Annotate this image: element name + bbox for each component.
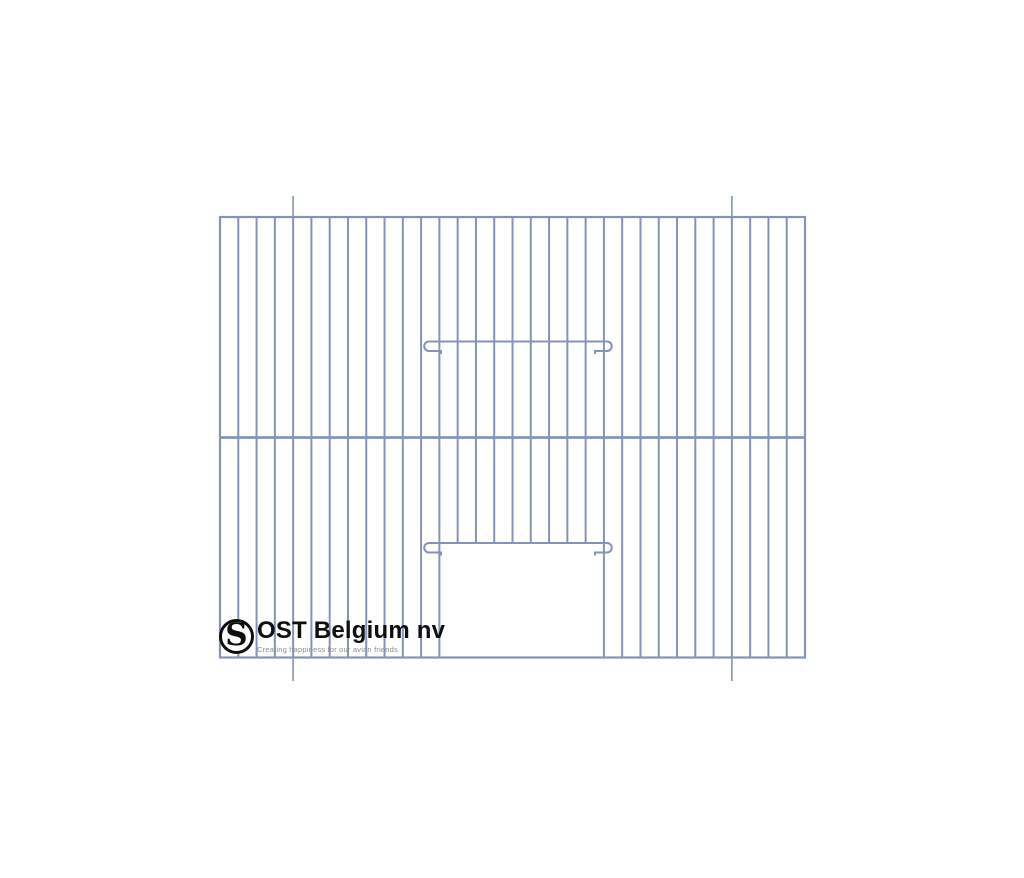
brand-name: OST Belgium nv: [257, 618, 445, 644]
cage-front-drawing: [0, 0, 1024, 878]
brand-tagline: Creating happiness for our avian friends: [257, 645, 445, 654]
logo-monogram: S: [225, 621, 247, 650]
logo-text: OST Belgium nv Creating happiness for ou…: [257, 618, 445, 654]
product-image: S OST Belgium nv Creating happiness for …: [0, 0, 1024, 878]
logo-monogram-circle: S: [219, 619, 254, 654]
